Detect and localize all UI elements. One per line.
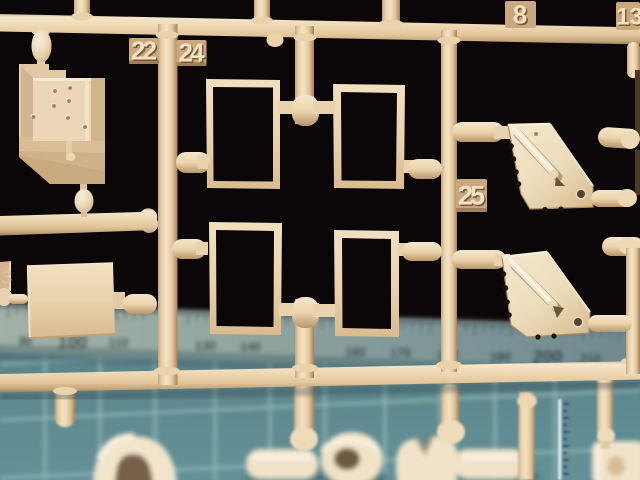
svg-text:110: 110 (108, 336, 129, 350)
svg-text:140: 140 (240, 340, 262, 354)
svg-text:25: 25 (458, 181, 485, 211)
svg-text:22: 22 (131, 36, 157, 66)
svg-text:170: 170 (390, 346, 412, 360)
svg-text:8: 8 (513, 0, 527, 30)
svg-text:13: 13 (616, 4, 640, 31)
svg-text:130: 130 (195, 339, 217, 353)
svg-text:190: 190 (490, 350, 512, 364)
svg-text:3: 3 (1, 267, 12, 289)
svg-text:24: 24 (179, 38, 206, 68)
svg-text:160: 160 (345, 345, 367, 359)
